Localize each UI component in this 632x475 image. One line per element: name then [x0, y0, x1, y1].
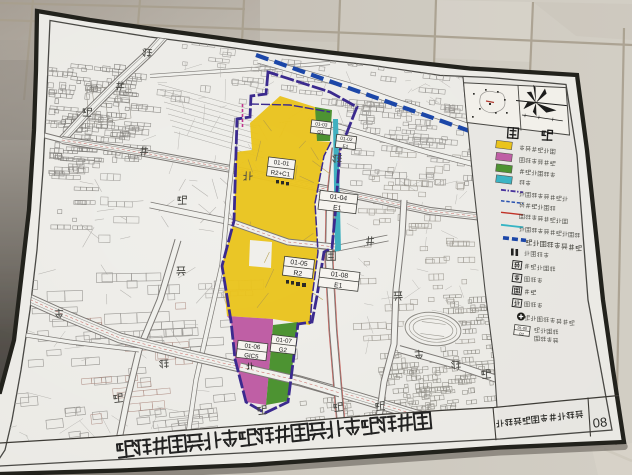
svg-text:08: 08	[592, 414, 608, 431]
svg-text:G1: G1	[317, 129, 324, 136]
svg-text:R2: R2	[519, 332, 524, 337]
svg-text:E1: E1	[342, 144, 349, 151]
svg-text:E1: E1	[333, 204, 342, 212]
svg-text:E1: E1	[334, 282, 343, 290]
svg-text:R2: R2	[293, 270, 303, 278]
svg-text:G2: G2	[278, 346, 288, 354]
